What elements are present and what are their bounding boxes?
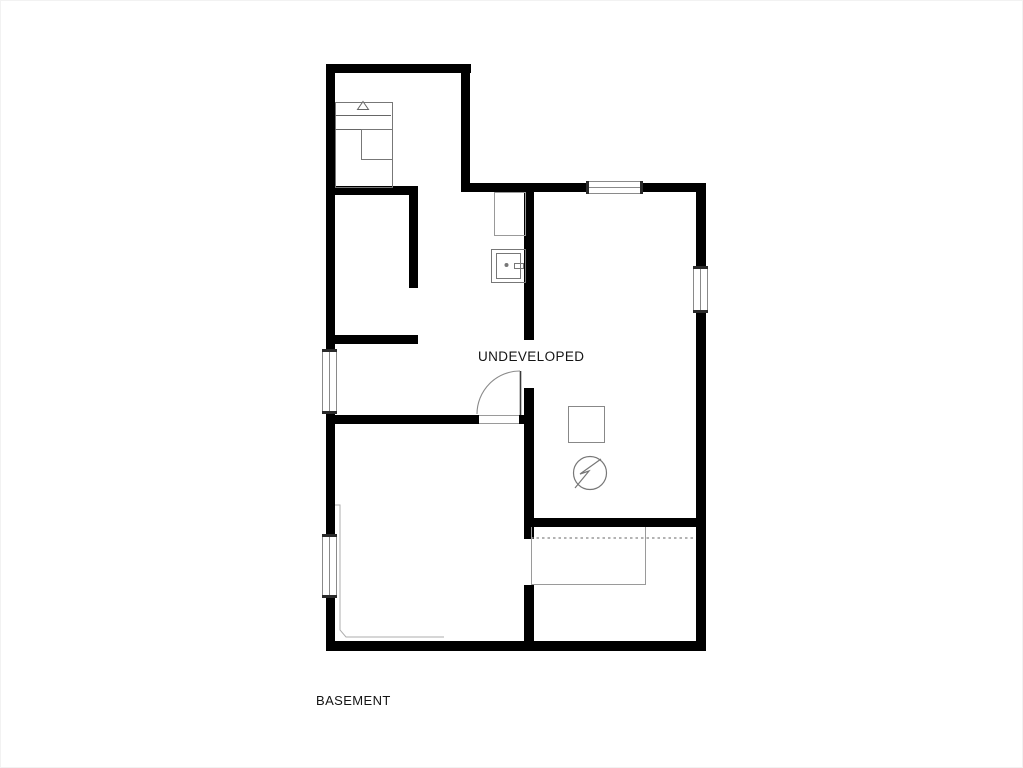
door-swing-arc [477, 371, 520, 414]
basement-label: BASEMENT [316, 693, 391, 708]
foundation-ledge-line [335, 505, 444, 637]
undeveloped-label: UNDEVELOPED [478, 349, 584, 364]
floorplan-canvas: UNDEVELOPED BASEMENT [0, 0, 1023, 768]
sink-drain-dot [505, 263, 509, 267]
electric-meter-bolt-icon [575, 459, 601, 488]
floorplan-linework [1, 1, 1023, 768]
furnace-triangle-icon [358, 102, 369, 110]
